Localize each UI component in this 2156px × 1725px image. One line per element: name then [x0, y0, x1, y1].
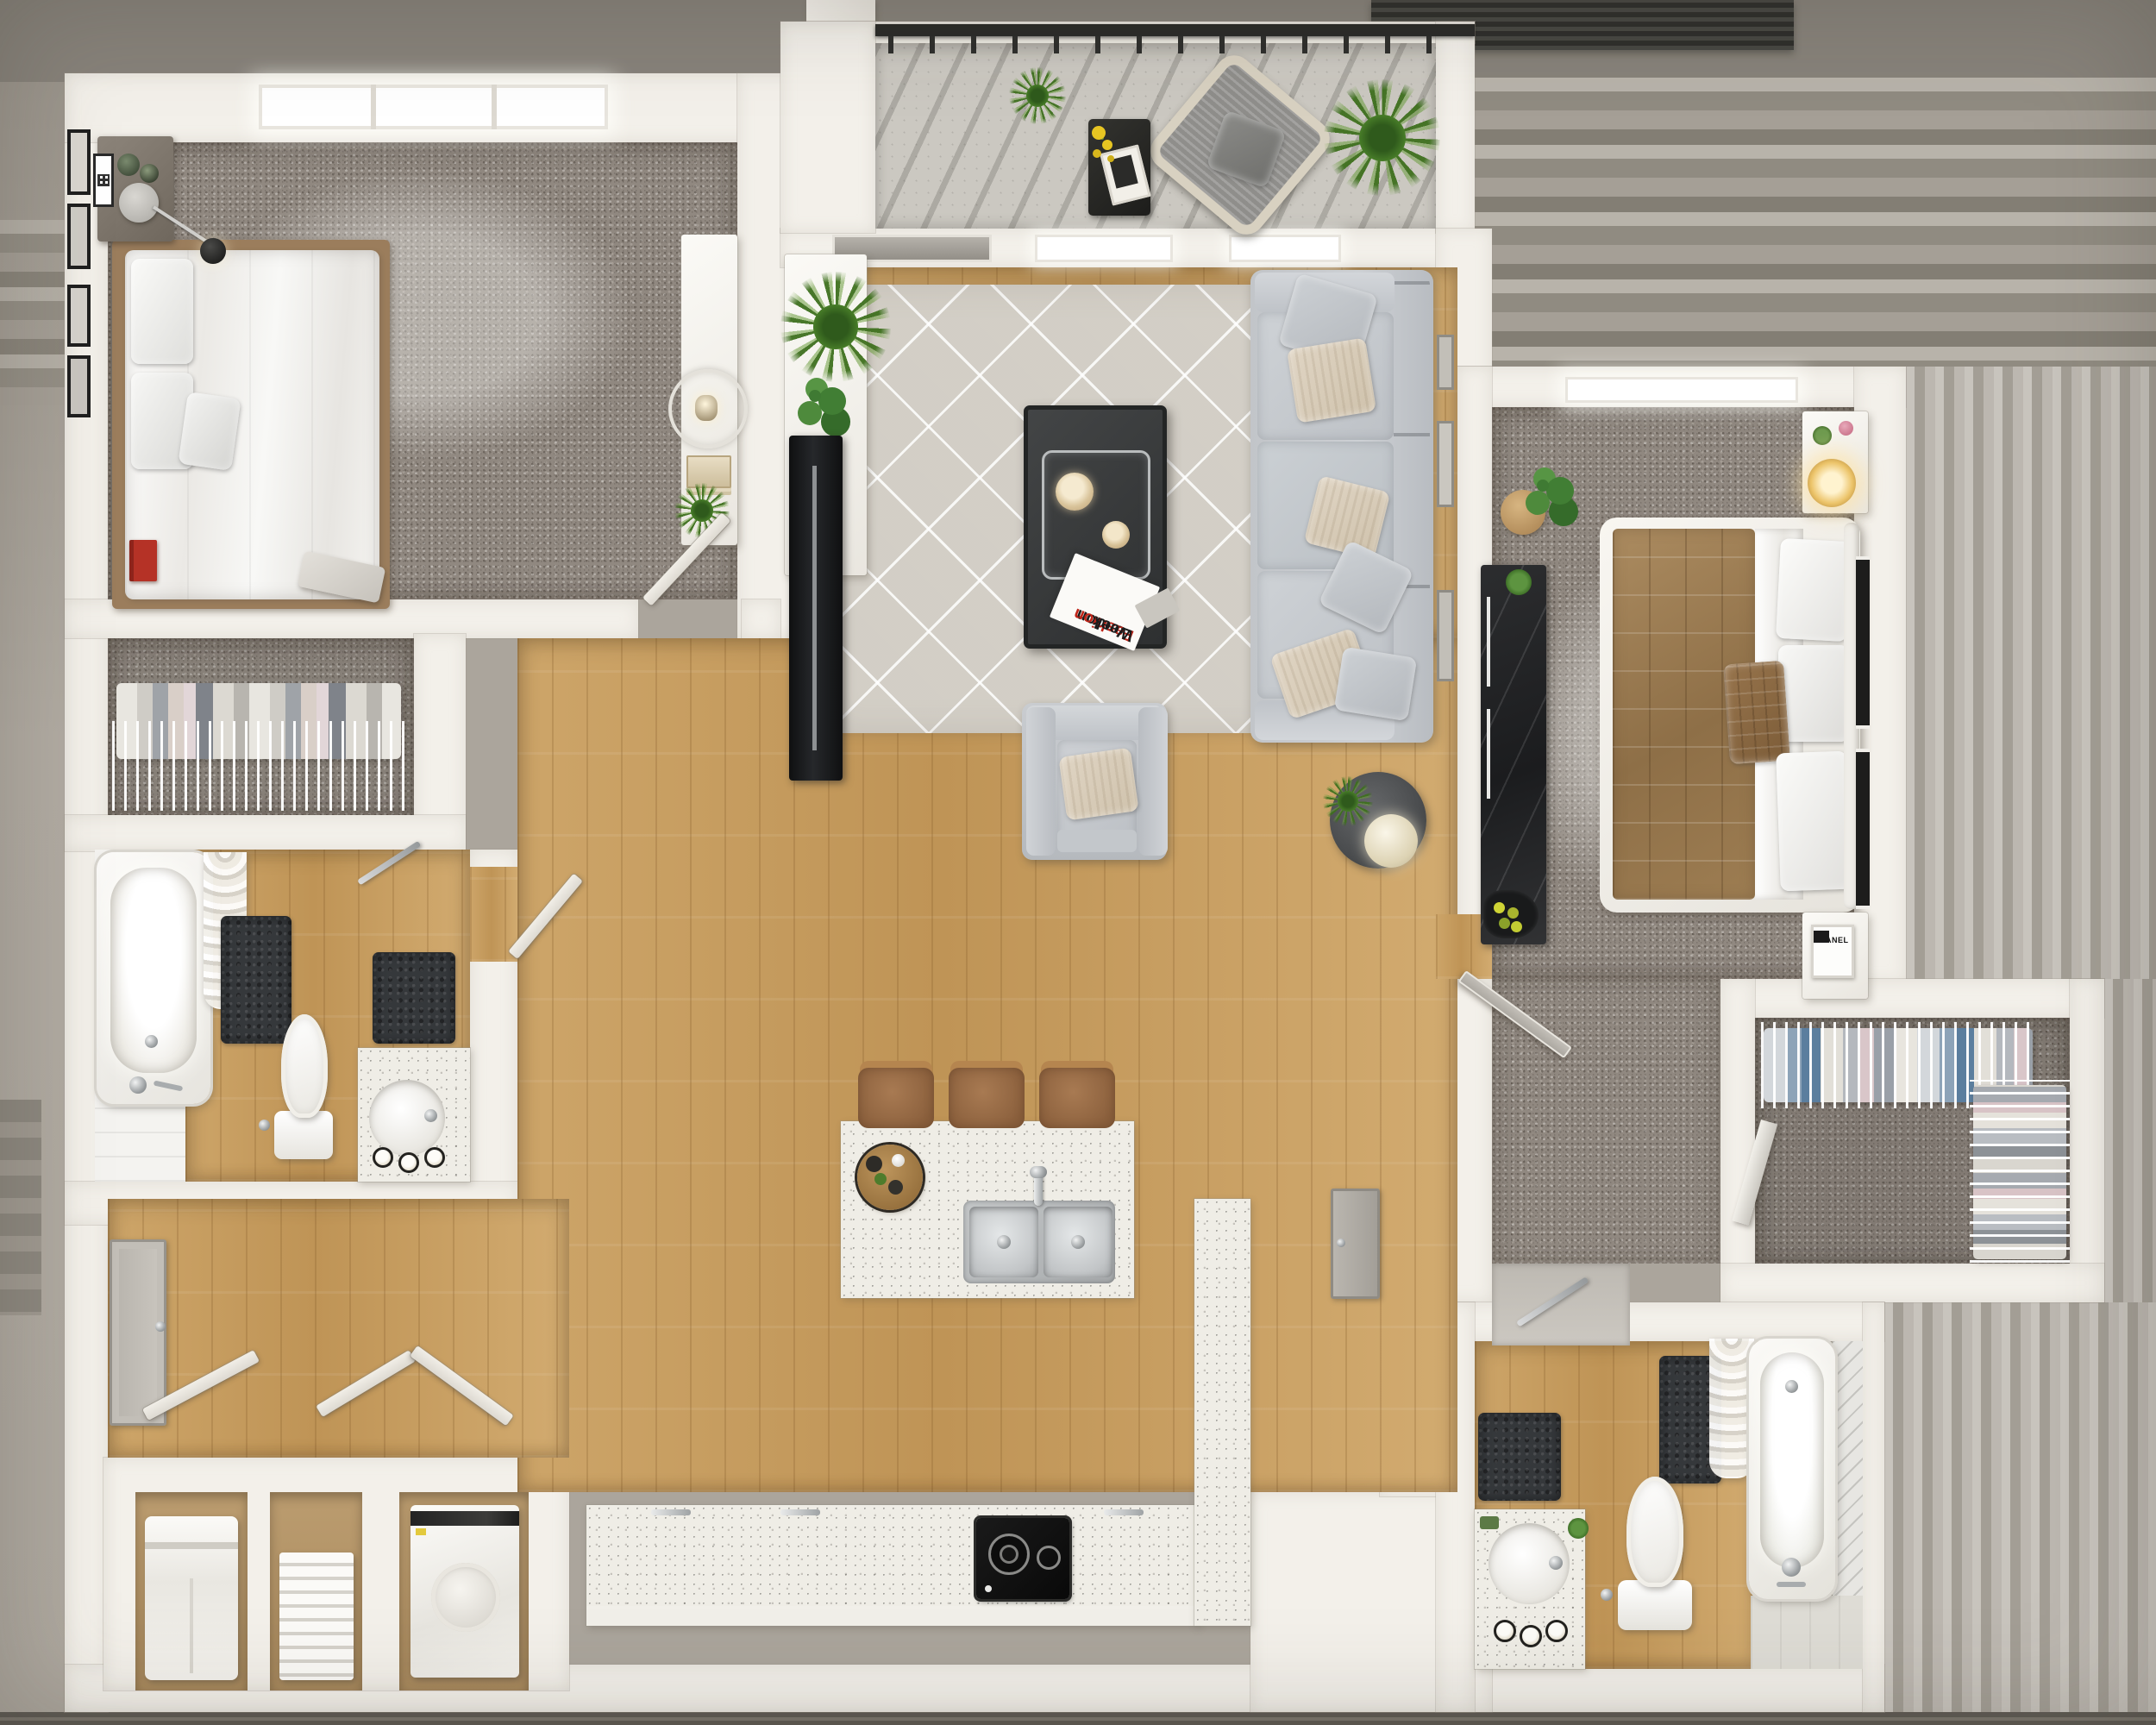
living-wall-frame-3 [1437, 590, 1454, 681]
bath1-candle-3 [424, 1147, 445, 1168]
nightstand-vase-1 [117, 154, 140, 176]
bedroom2-window-frame-strip-2 [1856, 749, 1870, 909]
counter-handle-3 [1104, 1509, 1144, 1515]
ball-lamp-shade [200, 238, 226, 264]
living-wall-frame-2 [1437, 421, 1454, 507]
bath2-tub-faucet [1782, 1558, 1801, 1577]
tray-plant-sprig [874, 1173, 887, 1185]
living-monstera [809, 390, 821, 402]
bath2-toilet-tank [1618, 1580, 1692, 1630]
tray-candle-small [1102, 521, 1130, 549]
bath2-candle-1 [1494, 1620, 1516, 1642]
bath2-toilet-bowl [1626, 1477, 1683, 1587]
bath2-tub-handle [1777, 1582, 1806, 1587]
sofa-pillow-gray-3 [1334, 647, 1418, 722]
closet2-wire-shelf-right [1970, 1080, 2070, 1263]
washer-control-strip [411, 1511, 519, 1526]
side-table-lamp-globe [1364, 814, 1418, 868]
stacked-laundry-top-band [145, 1542, 238, 1549]
bath2-mat-left [1478, 1413, 1561, 1501]
console-ring-lamp-core [695, 395, 718, 421]
bath1-toilet-bowl [281, 1014, 328, 1118]
bath1-sink-faucet [424, 1109, 437, 1122]
bed2-pillow-1 [1776, 538, 1852, 642]
coffee-table-tray [1042, 450, 1150, 580]
wall-bath2-right [1863, 1302, 1884, 1712]
main-wood [517, 638, 1457, 1492]
armchair-arm-right [1138, 707, 1168, 856]
left-stripe-patch [0, 220, 65, 405]
bar-stool-2 [949, 1068, 1025, 1128]
island-sink-drain-left [997, 1235, 1011, 1249]
kitchen-counter-face [586, 1606, 1199, 1626]
kitchen-gray-door-handle [1337, 1239, 1345, 1247]
nightstand-mirror [119, 183, 159, 223]
kitchen-counter-vertical [1194, 1199, 1250, 1626]
bath1-candle-2 [398, 1152, 419, 1173]
wall-art-frame-qr [93, 154, 114, 207]
wall-bedroom1-bottom-b [742, 599, 780, 638]
bedroom2-corner-plant-pot [1501, 490, 1545, 535]
wall-art-frame-3 [67, 285, 91, 347]
entry-door-handle [155, 1321, 166, 1332]
wall-closet2-top [1720, 979, 2104, 1018]
washer-lid [431, 1563, 500, 1632]
bar-stool-1 [858, 1068, 934, 1128]
chanel-frame-art [1814, 931, 1829, 943]
bed2-pillow-3 [1776, 751, 1852, 892]
washer-label-dot [416, 1528, 426, 1535]
wall-closet2-left [1720, 979, 1755, 1302]
wall-art-frame-4 [67, 355, 91, 417]
bedroom2-window-frame-strip-1 [1856, 556, 1870, 729]
counter-handle-1 [651, 1509, 691, 1515]
bath1-toilet-tank [274, 1111, 333, 1159]
nightstand-a-succulent [1813, 426, 1832, 445]
bath2-candle-3 [1545, 1620, 1568, 1642]
top-right-stripes [1466, 78, 2156, 367]
bath2-sink-faucet [1549, 1556, 1563, 1570]
living-window-3 [1229, 235, 1341, 262]
bedroom1-window-mullions [371, 85, 376, 129]
chanel-frame: CHANEL [1811, 925, 1854, 978]
wall-art-frame-1 [67, 129, 91, 195]
bath1-toilet-valve [259, 1120, 270, 1131]
dresser-handle-1 [1487, 597, 1490, 687]
bedroom2-monstera [1537, 480, 1549, 492]
living-tv-stand-line [812, 466, 817, 750]
bedroom2-window [1565, 377, 1798, 403]
living-wall-frame-1 [1437, 335, 1454, 390]
bath2-tub-drain [1785, 1380, 1798, 1393]
wall-closet1-bottom [65, 815, 466, 851]
cooktop-dot [985, 1585, 992, 1592]
balcony-railing-bar [875, 24, 1475, 36]
closet1-wire-shelf [112, 721, 405, 811]
tray-cup-white [892, 1154, 905, 1167]
bar-stool-3 [1039, 1068, 1115, 1128]
bed1-pillow-small [178, 392, 241, 471]
armchair-arm-left [1026, 707, 1056, 856]
balcony-small-plant [1009, 67, 1066, 124]
dresser-handle-2 [1487, 709, 1490, 799]
island-sink-drain-right [1071, 1235, 1085, 1249]
tray-candle-large [1056, 473, 1094, 511]
bedroom1-window [259, 85, 608, 129]
cooktop-burner-large [988, 1534, 1030, 1575]
side-table-plant [1323, 776, 1373, 826]
stacked-laundry-seam [190, 1578, 193, 1673]
right-stripes-closet [2104, 979, 2156, 1302]
bath2-vanity-plant [1568, 1518, 1589, 1539]
bedroom1-red-book [129, 540, 157, 581]
bath2-curtain [1709, 1339, 1754, 1478]
bed2-pillow-brown [1723, 661, 1790, 765]
right-stripes-bath [1884, 1302, 2156, 1712]
nightstand-vase-2 [140, 164, 159, 183]
counter-handle-2 [780, 1509, 820, 1515]
balcony-grass-plant [1324, 79, 1440, 196]
wall-closet2-bottom [1720, 1264, 2104, 1302]
bath1-candle-1 [373, 1147, 393, 1168]
floor-plan-render: London Fashion Week CHANEL [0, 0, 2156, 1725]
armchair-footrest [1057, 830, 1137, 852]
nightstand-a-lamp-glow [1808, 459, 1856, 507]
bath2-soap [1480, 1516, 1499, 1529]
island-faucet-spout [1030, 1166, 1047, 1178]
living-window-2 [1035, 235, 1173, 262]
dresser-fruit [1494, 902, 1505, 913]
balcony-railing-posts [888, 36, 1466, 53]
bed1-pillow-top [131, 259, 193, 364]
bath1-mat-left [221, 916, 291, 1044]
cooktop-burner-small [1037, 1546, 1061, 1570]
wall-balcony-left [780, 22, 875, 233]
bath2-candle-2 [1520, 1625, 1542, 1647]
dresser-plant [1506, 569, 1532, 595]
bath2-tile-band [1833, 1341, 1863, 1600]
balcony-flowers [1092, 126, 1106, 140]
bath1-tub-faucet [129, 1076, 147, 1094]
armchair-pillow [1058, 748, 1138, 821]
entry-door [110, 1239, 166, 1426]
left-dark-patch [0, 1100, 41, 1315]
bedroom2-dresser [1481, 565, 1546, 944]
island-wood-tray [857, 1145, 923, 1210]
bath2-toilet-valve [1601, 1589, 1613, 1601]
nightstand-a-vase [1839, 421, 1853, 436]
sofa-pillow-beige-1 [1287, 337, 1376, 423]
tray-cup-dark-2 [888, 1180, 903, 1195]
wall-closet2-right [2070, 979, 2104, 1302]
living-grass-plant [780, 272, 891, 382]
bottom-dark-band [0, 1712, 2156, 1725]
dresser-fruit-tray [1483, 890, 1539, 938]
bath1-tub-drain [145, 1035, 158, 1048]
wall-art-frame-2 [67, 204, 91, 269]
bath2-threshold [1492, 1264, 1630, 1345]
bath1-mat-right [373, 952, 455, 1044]
bath2-tile-floor [1751, 1596, 1863, 1669]
tray-cup-dark-1 [866, 1156, 882, 1172]
bed2-pillow-2 [1778, 645, 1849, 742]
shelf-stack [279, 1552, 354, 1680]
right-stripes-bedroom2 [1906, 367, 2156, 979]
